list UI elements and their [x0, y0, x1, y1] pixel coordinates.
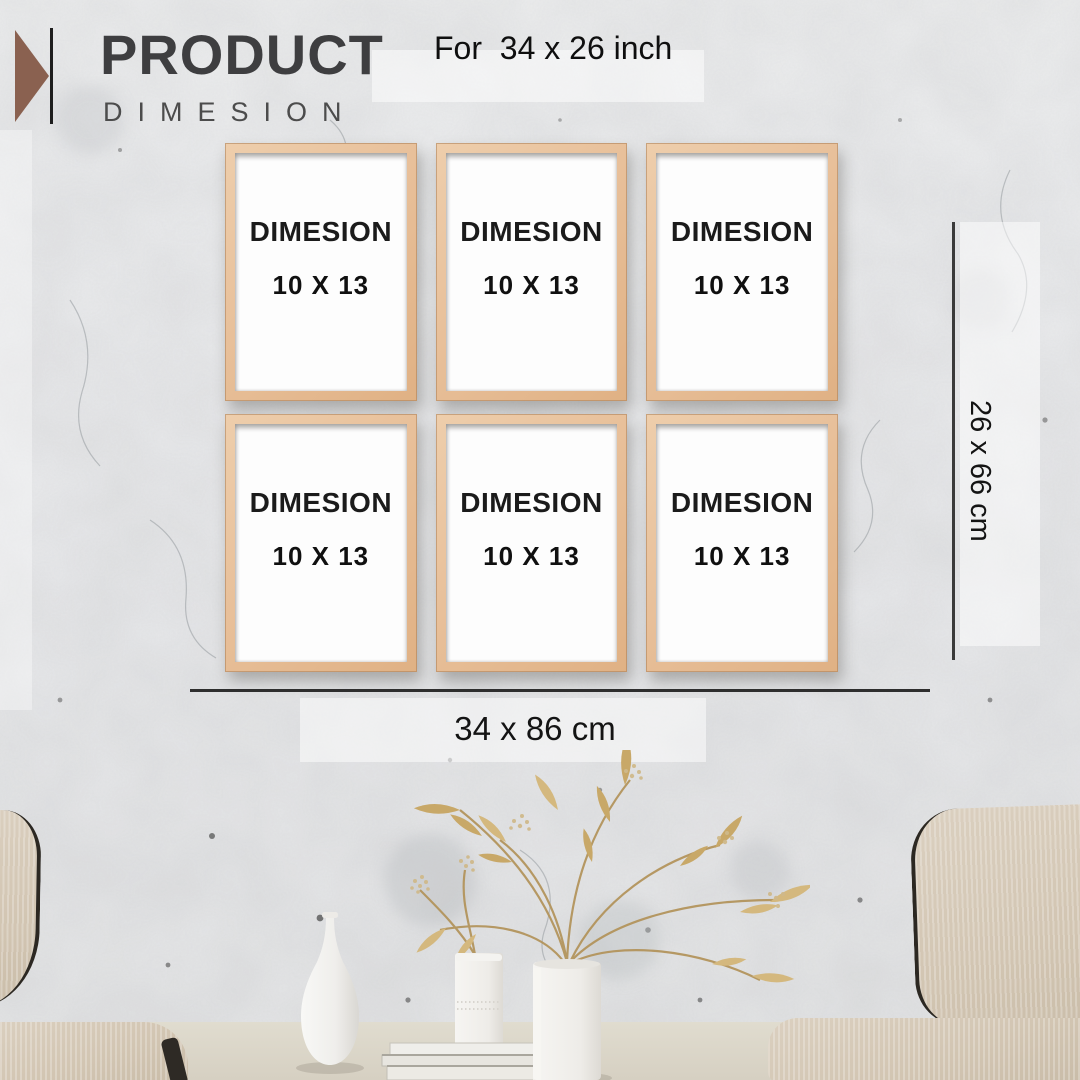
- logo-divider-line: [50, 28, 53, 124]
- frame-label: DIMESION: [460, 216, 602, 248]
- frame-size: 10 X 13: [483, 270, 580, 301]
- poster-canvas: PRODUCT DIMESION For 34 x 26 inch DIMESI…: [0, 0, 1080, 1080]
- frame-label: DIMESION: [671, 216, 813, 248]
- height-dimension-label: 26 x 66 cm: [960, 358, 1000, 583]
- frame-2-mat: DIMESION 10 X 13: [446, 153, 618, 391]
- height-dimension-line: [952, 222, 955, 660]
- frame-5-mat: DIMESION 10 X 13: [446, 424, 618, 662]
- width-dimension-line: [190, 689, 930, 692]
- frame-label: DIMESION: [671, 487, 813, 519]
- frame-1-mat: DIMESION 10 X 13: [235, 153, 407, 391]
- frame-label: DIMESION: [460, 487, 602, 519]
- frame-6-mat: DIMESION 10 X 13: [656, 424, 828, 662]
- teardrop-vase: [301, 912, 359, 1065]
- book-stack: [382, 1043, 548, 1080]
- brand-title: PRODUCT: [100, 22, 384, 87]
- frame-6: DIMESION 10 X 13: [646, 414, 838, 672]
- frame-size: 10 X 13: [273, 270, 370, 301]
- frame-size: 10 X 13: [273, 541, 370, 572]
- cylinder-vase-large: [533, 959, 601, 1080]
- frame-2: DIMESION 10 X 13: [436, 143, 628, 401]
- triangle-right-icon: [15, 30, 49, 122]
- frame-3-mat: DIMESION 10 X 13: [656, 153, 828, 391]
- frame-label: DIMESION: [250, 487, 392, 519]
- brand-subtitle: DIMESION: [103, 97, 357, 128]
- right-armchair-back: [909, 802, 1080, 1026]
- frame-3: DIMESION 10 X 13: [646, 143, 838, 401]
- still-life: [270, 750, 810, 1080]
- frame-1: DIMESION 10 X 13: [225, 143, 417, 401]
- size-note: For 34 x 26 inch: [434, 30, 672, 67]
- frame-size: 10 X 13: [694, 270, 791, 301]
- right-armchair-seat: [768, 1018, 1080, 1080]
- frames-grid: DIMESION 10 X 13 DIMESION 10 X 13 DIMESI…: [225, 143, 838, 672]
- frame-5: DIMESION 10 X 13: [436, 414, 628, 672]
- frame-label: DIMESION: [250, 216, 392, 248]
- width-dimension-label: 34 x 86 cm: [355, 710, 715, 748]
- frame-4: DIMESION 10 X 13: [225, 414, 417, 672]
- frame-size: 10 X 13: [694, 541, 791, 572]
- left-armchair-seat: [0, 1022, 188, 1080]
- frame-4-mat: DIMESION 10 X 13: [235, 424, 407, 662]
- cylinder-vase-small: [455, 953, 503, 1049]
- frame-size: 10 X 13: [483, 541, 580, 572]
